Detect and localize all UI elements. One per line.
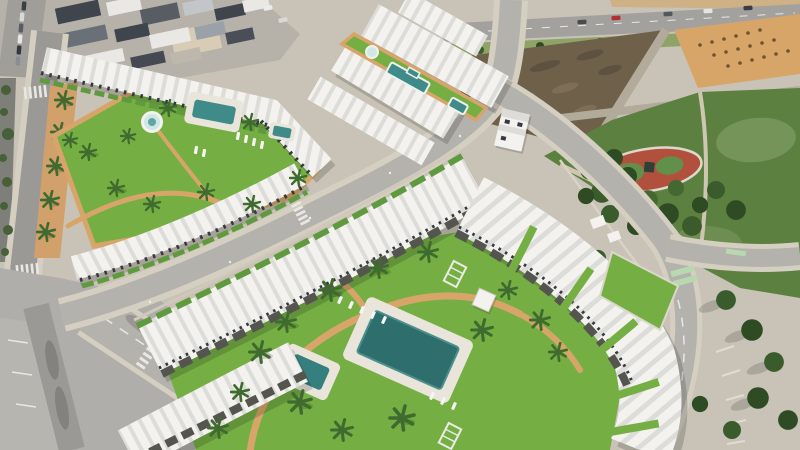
park-tree: [668, 180, 684, 196]
car: [743, 5, 752, 10]
park-tree: [692, 197, 708, 213]
complex-b-spa: [366, 46, 378, 58]
park-tree: [682, 216, 702, 236]
parked-car: [19, 12, 24, 21]
car: [663, 11, 672, 16]
parked-car: [16, 45, 21, 54]
complex-a-spa-center: [148, 118, 156, 126]
street-tree: [747, 387, 769, 409]
street-tree: [716, 290, 736, 310]
aerial-photo: Aerial render of a new-build white resid…: [0, 0, 800, 450]
parked-car: [17, 34, 22, 43]
streetlight: [149, 301, 151, 303]
streetlight: [229, 261, 231, 263]
play-structure: [644, 162, 655, 173]
street-tree: [692, 396, 708, 412]
parked-car: [21, 1, 26, 10]
parked-car: [15, 56, 20, 65]
streetlight: [389, 172, 391, 174]
streetlight: [459, 135, 461, 137]
park-tree: [707, 181, 725, 199]
street-tree: [723, 421, 741, 439]
park-tree: [578, 188, 594, 204]
park-tree: [726, 200, 746, 220]
car: [703, 8, 712, 13]
streetlight: [309, 217, 311, 219]
aerial-photo-canvas: Aerial render of a new-build white resid…: [0, 0, 800, 450]
parked-car: [18, 23, 23, 32]
car: [577, 19, 586, 24]
street-tree: [764, 352, 784, 372]
red-car: [611, 15, 620, 20]
street-tree: [778, 410, 798, 430]
street-tree: [741, 319, 763, 341]
